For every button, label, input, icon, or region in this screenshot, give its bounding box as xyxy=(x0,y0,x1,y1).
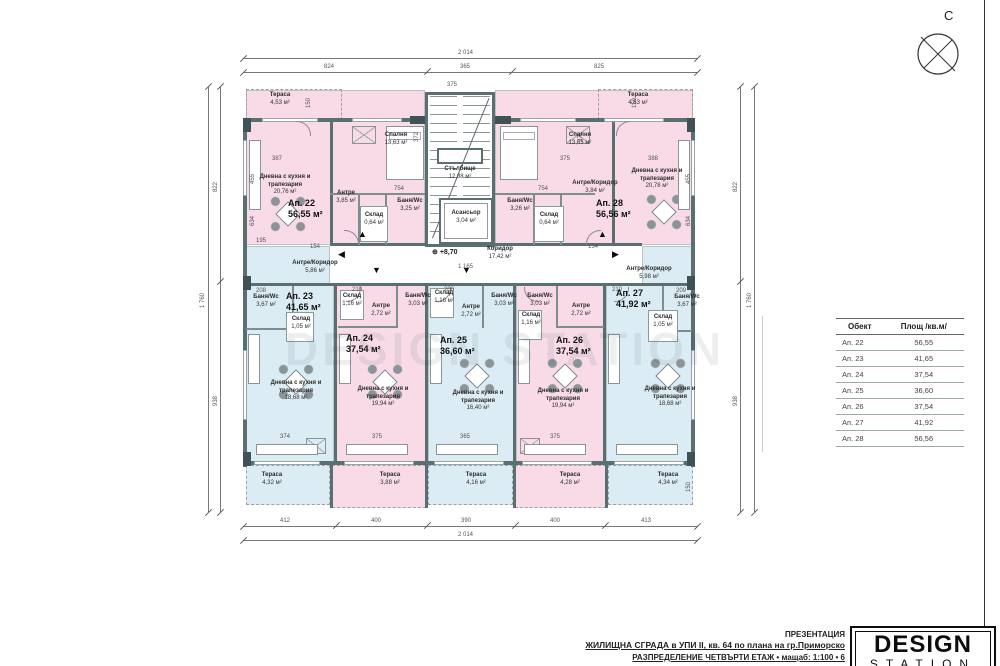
stair-landing xyxy=(437,148,483,164)
area-table: Обект Площ /кв.м/ Ап. 2256,55 Ап. 2341,6… xyxy=(836,318,964,447)
dim-label: 634 xyxy=(250,216,256,226)
room-label-hall-28: Антре/Коридор3,84 м² xyxy=(563,180,627,195)
dim-label: 412 xyxy=(280,518,290,524)
dim-label: 824 xyxy=(324,64,334,70)
table-left-rule xyxy=(762,316,763,452)
dim-label: 1 165 xyxy=(458,264,473,270)
partition xyxy=(338,326,398,328)
presentation-label: ПРЕЗЕНТАЦИЯ xyxy=(585,629,845,640)
room-label-bath-28: Баня/Wc3,26 м² xyxy=(498,198,542,213)
dim-label: 390 xyxy=(461,518,471,524)
logo-inner-frame: DESIGN STATION xyxy=(855,631,991,666)
room-label-hall-24: Антре2,72 м² xyxy=(362,303,400,318)
bed xyxy=(500,126,538,180)
dim-label: 634 xyxy=(686,216,692,226)
room-label-living-26: Дневна с кухня и трапезария19,94 м² xyxy=(526,388,600,411)
logo-word-station: STATION xyxy=(856,657,990,666)
room-label-hall-26: Антре2,72 м² xyxy=(562,303,600,318)
page-frame-line xyxy=(984,0,985,666)
window xyxy=(520,118,576,122)
room-label-living-25: Дневна с кухня и трапезария16,40 м² xyxy=(442,390,514,413)
room-label-bath-22: Баня/Wc3,25 м² xyxy=(388,198,432,213)
table-row: Ап. 2536,60 xyxy=(836,383,964,399)
dim-label: 1 760 xyxy=(200,293,206,308)
wall-t3 xyxy=(513,461,516,508)
dim-label: 822 xyxy=(213,182,219,192)
window xyxy=(254,461,320,465)
apartment-label-26: Ап. 2637,54 м² xyxy=(556,335,610,357)
logo-word-design: DESIGN xyxy=(856,633,990,657)
area-table-header: Площ /кв.м/ xyxy=(884,319,964,335)
room-label-elevator: Асансьор3,04 м² xyxy=(441,210,491,225)
dim-label: 154 xyxy=(588,244,598,250)
dim-label: 365 xyxy=(460,434,470,440)
table-row: Ап. 2637,54 xyxy=(836,399,964,415)
wall-t4 xyxy=(605,461,608,508)
project-title: ЖИЛИЩНА СГРАДА в УПИ II, кв. 64 по плана… xyxy=(585,640,845,652)
table-row: Ап. 2341,65 xyxy=(836,351,964,367)
cell-object: Ап. 24 xyxy=(836,367,884,383)
cell-object: Ап. 28 xyxy=(836,431,884,447)
dim-label: 413 xyxy=(641,518,651,524)
sofa xyxy=(256,444,318,455)
room-label-storage-23: Склад1,05 м² xyxy=(286,316,316,331)
window xyxy=(614,461,684,465)
dim-label: 375 xyxy=(372,434,382,440)
window xyxy=(352,118,402,122)
sofa xyxy=(616,444,678,455)
room-label-hall-27: Антре/Коридор5,98 м² xyxy=(616,266,682,281)
dim-label: 754 xyxy=(394,186,404,192)
sofa xyxy=(436,444,498,455)
table-row: Ап. 2741,92 xyxy=(836,415,964,431)
table-row: Ап. 2437,54 xyxy=(836,367,964,383)
window xyxy=(262,118,318,122)
dim-label: 375 xyxy=(550,434,560,440)
dim-label: 154 xyxy=(310,244,320,250)
room-label-terrace-24: Тераса3,88 м² xyxy=(362,472,418,487)
dim-label: 400 xyxy=(550,518,560,524)
wall-t1 xyxy=(330,461,333,508)
room-label-bedroom-22: Спалня13,63 м² xyxy=(372,132,420,147)
cell-object: Ап. 25 xyxy=(836,383,884,399)
section-arrow: ▼ xyxy=(372,266,381,275)
wall-b4 xyxy=(603,286,606,463)
room-label-bath-27: Баня/Wc3,67 м² xyxy=(664,294,710,309)
apartment-label-22: Ап. 2256,55 м² xyxy=(288,198,346,220)
title-block-text: ПРЕЗЕНТАЦИЯ ЖИЛИЩНА СГРАДА в УПИ II, кв.… xyxy=(585,629,845,663)
room-label-hall-23: Антре/Коридор5,86 м² xyxy=(282,260,348,275)
room-label-terrace-26: Тераса4,28 м² xyxy=(542,472,598,487)
wall-b3 xyxy=(513,286,516,463)
design-station-logo: DESIGN STATION xyxy=(850,626,996,666)
dim-label: 388 xyxy=(648,156,658,162)
compass-north-label: С xyxy=(944,8,953,23)
apartment-label-28: Ап. 2856,56 м² xyxy=(596,198,654,220)
wall-corridor-bottom xyxy=(243,283,695,286)
apartment-label-25: Ап. 2536,60 м² xyxy=(440,335,494,357)
area-table-header-row: Обект Площ /кв.м/ xyxy=(836,319,964,335)
room-label-stairs: Стълбище12,88 м² xyxy=(430,166,490,181)
room-label-storage-28: Склад0,64 м² xyxy=(536,212,562,227)
room-label-bath-23: Баня/Wc3,67 м² xyxy=(244,294,288,309)
column xyxy=(243,276,251,290)
dim-label: 374 xyxy=(280,434,290,440)
cell-area: 41,92 xyxy=(884,415,964,431)
dim-line xyxy=(243,72,698,73)
section-arrow: ▲ xyxy=(358,230,367,239)
level-mark: ⊕ +8,70 xyxy=(432,248,458,256)
apartment-label-27: Ап. 2741,92 м² xyxy=(616,288,670,310)
wall-b2 xyxy=(425,286,428,463)
window xyxy=(522,461,592,465)
room-label-storage-22: Склад0,64 м² xyxy=(361,212,387,227)
column xyxy=(687,452,695,466)
room-label-living-23: Дневна с кухня и трапезария18,68 м² xyxy=(258,380,334,403)
window xyxy=(434,461,504,465)
room-label-terrace-22: Тераса4,53 м² xyxy=(252,92,308,107)
window xyxy=(691,350,695,420)
apartment-label-23: Ап. 2341,65 м² xyxy=(286,291,340,313)
dim-label: 825 xyxy=(594,64,604,70)
room-label-terrace-28: Тераса4,53 м² xyxy=(610,92,666,107)
dim-label: 400 xyxy=(371,518,381,524)
cell-area: 37,54 xyxy=(884,367,964,383)
column xyxy=(243,452,251,466)
room-label-living-22: Дневна с кухня и трапезария20,76 м² xyxy=(246,174,324,197)
dim-line xyxy=(243,540,698,541)
cell-area: 36,60 xyxy=(884,383,964,399)
dim-label: 375 xyxy=(447,82,457,88)
room-label-storage-26: Склад1,16 м² xyxy=(517,312,545,327)
dim-line xyxy=(243,58,698,59)
dim-line xyxy=(740,87,741,512)
cell-object: Ап. 22 xyxy=(836,335,884,351)
area-table-header: Обект xyxy=(836,319,884,335)
column xyxy=(687,118,695,132)
room-label-bedroom-28: Спалня13,63 м² xyxy=(556,132,604,147)
room-label-terrace-23: Тераса4,32 м² xyxy=(244,472,300,487)
column xyxy=(493,116,511,124)
sofa xyxy=(346,444,408,455)
kitchen-counter xyxy=(518,334,530,384)
section-arrow: ▶ xyxy=(612,250,619,259)
cell-object: Ап. 23 xyxy=(836,351,884,367)
dim-label: 2 014 xyxy=(458,50,473,56)
dim-label: 387 xyxy=(272,156,282,162)
wall-t2 xyxy=(425,461,428,508)
room-label-storage-27: Склад1,05 м² xyxy=(648,314,678,329)
dim-label: 754 xyxy=(538,186,548,192)
room-label-living-28: Дневна с кухня и трапезария20,78 м² xyxy=(618,168,696,191)
wall-v1 xyxy=(330,120,333,246)
cell-area: 56,56 xyxy=(884,431,964,447)
column xyxy=(243,118,251,132)
dim-label: 195 xyxy=(256,238,266,244)
dim-label: 2 014 xyxy=(458,532,473,538)
room-label-terrace-27: Тераса4,34 м² xyxy=(640,472,696,487)
cell-area: 56,55 xyxy=(884,335,964,351)
room-label-corridor: Коридор17,42 м² xyxy=(468,246,532,261)
partition xyxy=(556,326,604,328)
room-label-terrace-25: Тераса4,16 м² xyxy=(448,472,504,487)
cell-area: 37,54 xyxy=(884,399,964,415)
sheet-title: РАЗПРЕДЕЛЕНИЕ ЧЕТВЪРТИ ЕТАЖ • мащаб: 1:1… xyxy=(585,652,845,663)
window xyxy=(243,350,247,420)
dim-label: 822 xyxy=(733,182,739,192)
cell-area: 41,65 xyxy=(884,351,964,367)
room-label-living-24: Дневна с кухня и трапезария19,94 м² xyxy=(346,386,420,409)
table-row: Ап. 2256,55 xyxy=(836,335,964,351)
dim-line xyxy=(208,87,209,512)
room-label-bath-26: Баня/Wc3,03 м² xyxy=(518,293,562,308)
dim-label: 1 760 xyxy=(747,293,753,308)
sofa xyxy=(524,444,586,455)
dim-line xyxy=(243,526,698,527)
dim-label: 375 xyxy=(560,156,570,162)
column xyxy=(687,276,695,290)
dim-label: 938 xyxy=(733,396,739,406)
table-row: Ап. 2856,56 xyxy=(836,431,964,447)
dim-line xyxy=(220,87,221,512)
section-arrow: ◀ xyxy=(338,250,345,259)
cell-object: Ап. 26 xyxy=(836,399,884,415)
kitchen-counter xyxy=(248,334,260,384)
window xyxy=(604,118,664,122)
cell-object: Ап. 27 xyxy=(836,415,884,431)
section-arrow: ▲ xyxy=(598,230,607,239)
dim-label: 938 xyxy=(213,396,219,406)
dining-table xyxy=(459,358,495,394)
room-label-living-27: Дневна с кухня и трапезария18,68 м² xyxy=(632,386,708,409)
drawing-sheet: DESIGN STATION С xyxy=(0,0,1000,666)
apartment-label-24: Ап. 2437,54 м² xyxy=(346,333,400,355)
dim-line xyxy=(754,87,755,512)
room-label-storage-25: Склад1,16 м² xyxy=(430,290,458,305)
window xyxy=(344,461,414,465)
compass-icon xyxy=(905,12,975,82)
dim-label: 365 xyxy=(460,64,470,70)
